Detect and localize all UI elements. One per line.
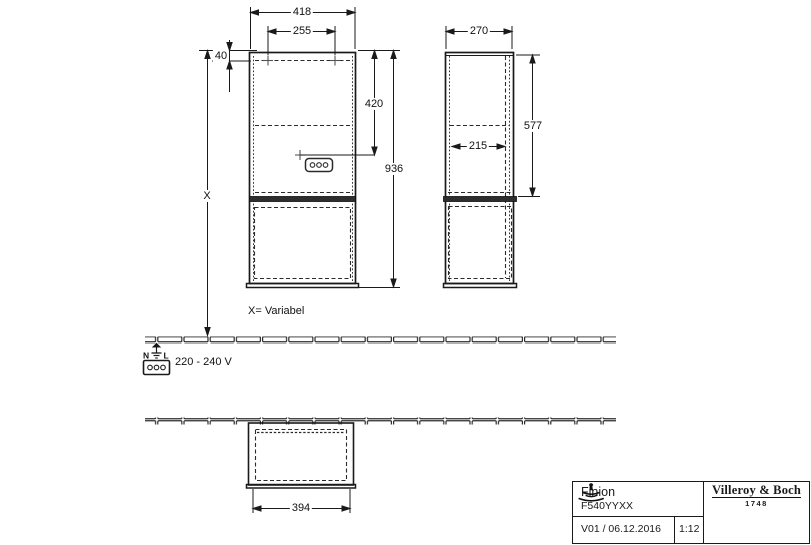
dim-hole-spacing-label: 255 xyxy=(291,25,313,37)
variable-height-note: X= Variabel xyxy=(248,305,304,317)
brand-fountain-icon xyxy=(573,482,609,504)
brand-year: 1748 xyxy=(745,499,768,508)
dim-opening-width-label: 394 xyxy=(290,502,312,514)
bottom-view xyxy=(247,423,356,488)
dim-upper-height-label: 577 xyxy=(522,120,544,132)
drawing-linework: N L xyxy=(0,0,811,545)
front-dimensions xyxy=(199,7,400,336)
dim-hole-offset-label: 40 xyxy=(213,50,229,62)
neutral-terminal-label: N xyxy=(143,351,149,361)
front-view xyxy=(247,53,375,288)
dim-socket-height-label: 420 xyxy=(363,98,385,110)
side-dimensions xyxy=(446,26,540,197)
power-connection-symbol: N L xyxy=(143,344,170,375)
title-block-revision-row: V01 / 06.12.2016 1:12 xyxy=(573,517,703,543)
dim-side-depth-label: 270 xyxy=(468,25,490,37)
voltage-note: 220 - 240 V xyxy=(175,356,232,368)
side-view xyxy=(444,53,517,288)
brand-name: Villeroy & Boch xyxy=(712,484,801,498)
floor-line-lower xyxy=(145,418,616,425)
dim-front-width-label: 418 xyxy=(291,6,313,18)
dim-inner-depth-label: 215 xyxy=(467,140,489,152)
earth-ground-icon xyxy=(152,344,162,359)
brand-logo: Villeroy & Boch 1748 xyxy=(704,482,809,543)
dim-total-height-label: X xyxy=(201,190,212,202)
floor-line-upper xyxy=(145,337,616,344)
drawing-scale: 1:12 xyxy=(675,517,703,543)
terminal-box-icon xyxy=(144,361,170,375)
dim-cabinet-height-label: 936 xyxy=(383,163,405,175)
power-socket-icon xyxy=(306,159,333,172)
drawing-sheet: N L 418 255 40 X 420 936 270 577 215 394… xyxy=(0,0,811,545)
version-date: V01 / 06.12.2016 xyxy=(573,517,675,543)
title-block: Finion F540YYXX V01 / 06.12.2016 1:12 Vi… xyxy=(572,481,810,544)
line-terminal-label: L xyxy=(164,351,169,361)
mounting-hole-markers xyxy=(263,56,340,161)
